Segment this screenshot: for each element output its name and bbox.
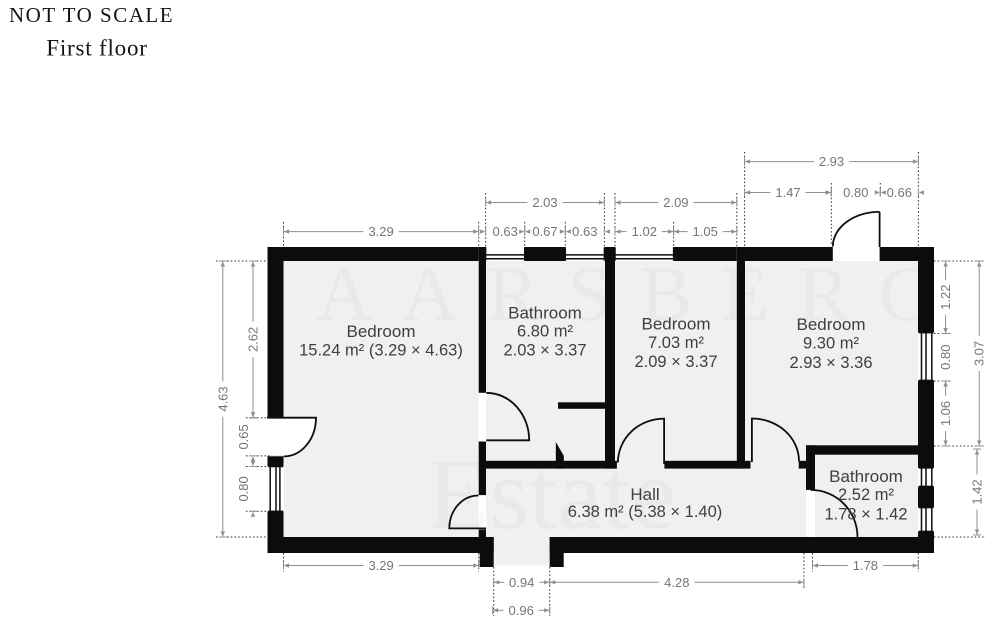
svg-text:1.47: 1.47 (775, 185, 800, 200)
svg-text:0.96: 0.96 (509, 603, 534, 618)
svg-text:NOT TO SCALE: NOT TO SCALE (9, 3, 174, 27)
svg-text:4.28: 4.28 (664, 575, 689, 590)
svg-text:0.67: 0.67 (532, 224, 557, 239)
svg-text:15.24 m² (3.29 × 4.63): 15.24 m² (3.29 × 4.63) (299, 342, 463, 360)
svg-text:9.30 m²: 9.30 m² (803, 335, 859, 353)
svg-text:2.52 m²: 2.52 m² (838, 486, 894, 504)
svg-text:3.07: 3.07 (972, 341, 987, 366)
svg-text:2.93: 2.93 (819, 154, 844, 169)
svg-text:0.80: 0.80 (236, 476, 251, 501)
svg-text:0.94: 0.94 (509, 575, 534, 590)
svg-text:0.63: 0.63 (572, 224, 597, 239)
svg-text:1.06: 1.06 (938, 401, 953, 426)
svg-text:1.42: 1.42 (970, 479, 985, 504)
svg-text:1.22: 1.22 (938, 285, 953, 310)
svg-text:2.03: 2.03 (532, 195, 557, 210)
svg-text:Hall: Hall (630, 485, 659, 504)
svg-text:3.29: 3.29 (368, 224, 393, 239)
svg-text:2.03 × 3.37: 2.03 × 3.37 (503, 342, 586, 360)
svg-text:6.38 m² (5.38 × 1.40): 6.38 m² (5.38 × 1.40) (568, 503, 723, 521)
svg-text:0.63: 0.63 (493, 224, 518, 239)
svg-text:2.93 × 3.36: 2.93 × 3.36 (789, 354, 872, 372)
svg-text:Bathroom: Bathroom (829, 467, 903, 486)
svg-text:Bedroom: Bedroom (347, 322, 416, 341)
svg-text:0.80: 0.80 (938, 345, 953, 370)
svg-text:0.80: 0.80 (843, 185, 868, 200)
svg-text:2.09 × 3.37: 2.09 × 3.37 (634, 353, 717, 371)
svg-text:1.02: 1.02 (632, 224, 657, 239)
svg-text:First floor: First floor (46, 36, 147, 61)
svg-text:3.29: 3.29 (368, 558, 393, 573)
svg-text:0.66: 0.66 (887, 185, 912, 200)
svg-text:2.62: 2.62 (246, 327, 261, 352)
svg-text:1.78: 1.78 (853, 558, 878, 573)
svg-text:6.80 m²: 6.80 m² (517, 323, 573, 341)
svg-text:1.05: 1.05 (693, 224, 718, 239)
svg-text:4.63: 4.63 (215, 386, 230, 411)
svg-text:2.09: 2.09 (663, 195, 688, 210)
svg-text:Bedroom: Bedroom (797, 315, 866, 334)
svg-text:Bedroom: Bedroom (642, 315, 711, 334)
svg-text:7.03 m²: 7.03 m² (648, 334, 704, 352)
svg-text:0.65: 0.65 (236, 424, 251, 449)
svg-text:1.78 × 1.42: 1.78 × 1.42 (824, 506, 907, 524)
svg-text:Bathroom: Bathroom (508, 304, 582, 323)
